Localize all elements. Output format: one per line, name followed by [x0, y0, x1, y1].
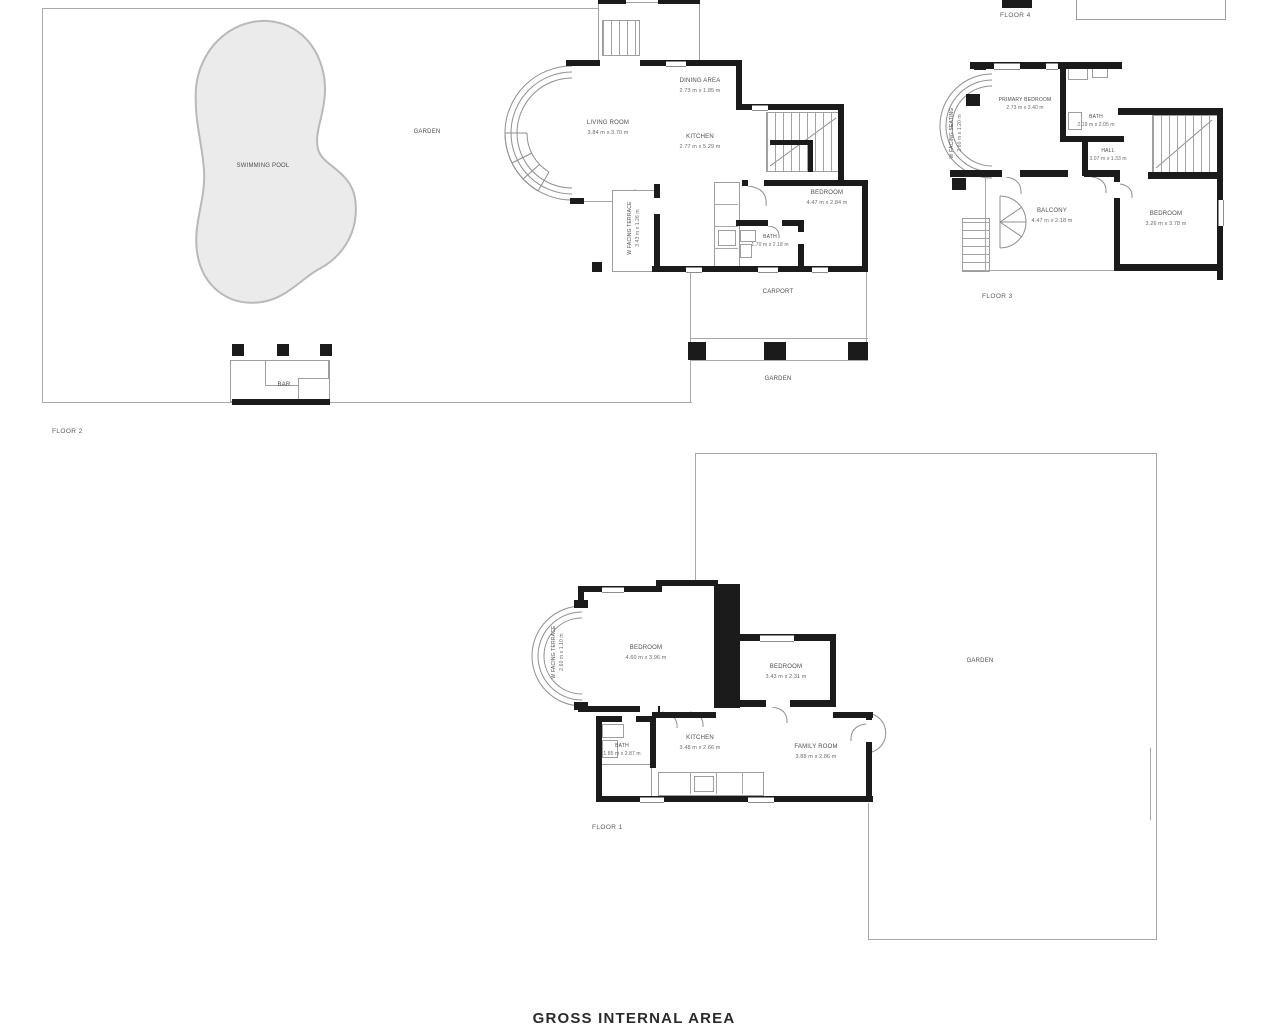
- drawing-element: [758, 267, 778, 273]
- drawing-element: [505, 66, 572, 200]
- drawing-element: [596, 716, 602, 802]
- floor3-staircase-icon: [1152, 115, 1218, 173]
- floor3-bath-fixture: [1068, 68, 1088, 80]
- garden-label: GARDEN: [414, 128, 441, 138]
- drawing-element: [527, 133, 549, 172]
- drawing-element: PRIMARY BEDROOM: [999, 97, 1052, 103]
- drawing-element: [596, 796, 873, 802]
- drawing-element: 2.60 m x 1.10 m: [558, 625, 566, 678]
- drawing-element: [952, 178, 966, 190]
- drawing-element: [966, 94, 980, 106]
- drawing-element: [1000, 196, 1026, 248]
- drawing-element: [1114, 182, 1120, 198]
- drawing-element: [598, 0, 626, 4]
- drawing-element: [798, 232, 804, 244]
- floor4-title: FLOOR 4: [1000, 12, 1031, 19]
- drawing-element: [772, 707, 787, 723]
- drawing-element: [656, 580, 662, 592]
- drawing-element: 3.07 m x 1.33 m: [1089, 155, 1126, 163]
- drawing-element: [748, 797, 774, 803]
- room-label-bath2: BATH1.70 m x 2.18 m: [751, 233, 788, 249]
- drawing-element: [1114, 264, 1223, 271]
- floor1-stairwell: [600, 764, 652, 798]
- drawing-element: 1.85 m x 2.87 m: [603, 750, 640, 758]
- room-label-bath1: BATH1.85 m x 2.87 m: [603, 742, 640, 758]
- floor-plan-sheet: SWIMMING POOL GARDEN BAR CARPORT GARDEN …: [0, 0, 1280, 1024]
- drawing-element: BATH: [1089, 114, 1103, 120]
- drawing-element: [694, 776, 714, 792]
- drawing-element: [666, 61, 686, 67]
- drawing-element: [656, 580, 718, 586]
- floor3-title: FLOOR 3: [982, 293, 1013, 300]
- drawing-element: [985, 270, 1115, 271]
- drawing-element: [1148, 172, 1223, 179]
- room-label-hall: HALL3.07 m x 1.33 m: [1089, 147, 1126, 163]
- drawing-element: [752, 105, 768, 111]
- drawing-element: [742, 772, 743, 794]
- drawing-element: FLOOR 2: [52, 428, 83, 435]
- drawing-element: [658, 0, 700, 4]
- drawing-element: [851, 724, 866, 741]
- floor2-entry-stairs-icon: [602, 20, 640, 56]
- drawing-element: [652, 712, 716, 718]
- drawing-element: [42, 402, 692, 403]
- drawing-element: BATH: [763, 234, 777, 240]
- drawing-element: [748, 186, 766, 206]
- drawing-element: [1150, 748, 1151, 820]
- drawing-element: [650, 716, 656, 768]
- drawing-element: [578, 586, 584, 608]
- drawing-element: [1066, 136, 1124, 142]
- drawing-element: [695, 453, 696, 583]
- room-label-bedroom2f: BEDROOM4.47 m x 2.84 m: [807, 189, 848, 207]
- drawing-element: SWIMMING POOL: [237, 163, 290, 169]
- floor1-title: FLOOR 1: [592, 824, 623, 831]
- drawing-element: [1082, 140, 1088, 176]
- drawing-element: 4.47 m x 2.84 m: [807, 198, 848, 207]
- drawing-element: [862, 180, 868, 272]
- drawing-element: 3.84 m x 3.70 m: [587, 128, 629, 137]
- bar-label: BAR: [278, 381, 291, 391]
- drawing-element: LIVING ROOM: [587, 120, 629, 126]
- drawing-element: FAMILY ROOM: [794, 744, 837, 750]
- drawing-element: [690, 360, 868, 361]
- room-label-bedroom3f: BEDROOM3.26 m x 3.78 m: [1146, 210, 1187, 228]
- room-label-kitchen2: KITCHEN2.77 m x 5.29 m: [680, 133, 721, 151]
- carport-post: [764, 342, 786, 360]
- room-label-seating3: W FACING SEATING2.60 m x 1.20 m: [948, 108, 964, 159]
- drawing-element: [736, 60, 742, 110]
- carport-post: [688, 342, 706, 360]
- drawing-element: FLOOR 1: [592, 824, 623, 831]
- drawing-element: [517, 78, 572, 188]
- drawing-element: [714, 226, 738, 227]
- swimming-pool-label: SWIMMING POOL: [237, 162, 290, 172]
- drawing-element: [812, 267, 828, 273]
- drawing-element: 3.43 m x 2.31 m: [766, 672, 807, 681]
- drawing-element: BALCONY: [1037, 208, 1067, 214]
- drawing-element: W FACING SEATING: [949, 108, 955, 159]
- drawing-element: [985, 177, 986, 271]
- drawing-element: [1120, 184, 1132, 198]
- room-label-terrace1: W FACING TERRACE2.60 m x 1.10 m: [550, 625, 566, 678]
- room-label-dining: DINING AREA2.73 m x 1.85 m: [680, 77, 721, 95]
- drawing-element: [866, 720, 872, 742]
- drawing-element: [768, 220, 782, 226]
- room-label-primary: PRIMARY BEDROOM2.73 m x 3.40 m: [999, 96, 1052, 112]
- drawing-element: [538, 172, 549, 191]
- drawing-element: 3.43 m x 1.26 m: [634, 201, 642, 254]
- drawing-element: [600, 60, 640, 66]
- drawing-element: [690, 272, 691, 402]
- drawing-element: [830, 634, 836, 707]
- drawing-element: [512, 153, 532, 163]
- drawing-element: W FACING TERRACE: [627, 201, 633, 254]
- drawing-element: [622, 716, 636, 722]
- drawing-element: [690, 338, 868, 339]
- drawing-element: [592, 262, 602, 272]
- room-label-living: LIVING ROOM3.84 m x 3.70 m: [587, 119, 629, 137]
- carport-label: CARPORT: [763, 288, 794, 298]
- drawing-element: BEDROOM: [770, 664, 802, 670]
- floor1-chimney-block: [714, 584, 740, 708]
- drawing-element: 4.47 m x 2.18 m: [1032, 216, 1073, 225]
- pergola-post: [277, 344, 289, 356]
- drawing-element: [1156, 453, 1157, 940]
- drawing-element: [1000, 222, 1022, 237]
- drawing-element: GROSS INTERNAL AREA: [533, 1010, 736, 1027]
- floor2-bath-fixture: [740, 244, 752, 258]
- floor1-bath-fixture: [602, 724, 624, 738]
- drawing-element: KITCHEN: [686, 134, 714, 140]
- floor4-terrace-outline: [1076, 0, 1226, 20]
- floor2-bay-window-icon: [505, 66, 572, 200]
- drawing-element: [42, 8, 598, 9]
- drawing-element: 2.73 m x 3.40 m: [999, 104, 1052, 112]
- floor3-spiral-stair-icon: [1000, 196, 1026, 248]
- drawing-element: 3.48 m x 2.66 m: [680, 743, 721, 752]
- drawing-element: 4.60 m x 3.96 m: [626, 653, 667, 662]
- drawing-element: [714, 204, 738, 205]
- room-label-bedroom1a: BEDROOM4.60 m x 3.96 m: [626, 644, 667, 662]
- drawing-element: [602, 587, 624, 593]
- drawing-element: [1046, 63, 1058, 70]
- drawing-element: [686, 267, 702, 273]
- drawing-element: [770, 140, 812, 145]
- drawing-element: [232, 399, 330, 405]
- drawing-element: 3.26 m x 3.78 m: [1146, 219, 1187, 228]
- drawing-element: [695, 453, 1157, 454]
- pergola-post: [232, 344, 244, 356]
- drawing-element: [1002, 170, 1020, 177]
- drawing-element: [1000, 207, 1022, 222]
- drawing-element: [566, 60, 590, 66]
- drawing-element: GARDEN: [765, 376, 792, 382]
- drawing-element: BEDROOM: [811, 190, 843, 196]
- drawing-element: [994, 63, 1020, 70]
- drawing-element: [716, 772, 717, 794]
- drawing-element: [523, 164, 540, 179]
- drawing-element: [584, 201, 612, 202]
- drawing-element: [1118, 108, 1223, 115]
- drawing-element: [1092, 177, 1106, 193]
- drawing-element: BAR: [278, 382, 291, 388]
- drawing-element: [570, 198, 584, 204]
- drawing-element: 1.70 m x 2.18 m: [751, 241, 788, 249]
- drawing-element: [760, 635, 794, 642]
- plan-drawing-overlay: [0, 0, 1280, 1024]
- drawing-element: FLOOR 3: [982, 293, 1013, 300]
- room-label-kitchen1: KITCHEN3.48 m x 2.66 m: [680, 734, 721, 752]
- drawing-element: [654, 198, 660, 214]
- garden1-label: GARDEN: [967, 657, 994, 667]
- room-label-terrace2: W FACING TERRACE3.43 m x 1.26 m: [626, 201, 642, 254]
- drawing-element: [1002, 0, 1032, 8]
- drawing-element: [838, 104, 844, 186]
- drawing-element: [766, 700, 790, 707]
- drawing-element: BEDROOM: [1150, 211, 1182, 217]
- drawing-element: 2.19 m x 2.05 m: [1077, 121, 1114, 129]
- drawing-element: [1218, 200, 1224, 226]
- drawing-element: [1217, 108, 1223, 280]
- drawing-element: DINING AREA: [680, 78, 721, 84]
- floor3-bath-fixture: [1092, 68, 1108, 78]
- drawing-element: 2.73 m x 1.85 m: [680, 86, 721, 95]
- gross-internal-area-caption: GROSS INTERNAL AREA: [533, 1010, 736, 1027]
- drawing-element: [640, 797, 664, 803]
- garden-lower-label: GARDEN: [765, 375, 792, 385]
- drawing-element: [808, 140, 813, 172]
- drawing-element: BATH: [615, 743, 629, 749]
- pergola-post: [320, 344, 332, 356]
- room-label-bath3: BATH2.19 m x 2.05 m: [1077, 113, 1114, 129]
- drawing-element: GARDEN: [414, 129, 441, 135]
- drawing-element: 2.60 m x 1.20 m: [956, 108, 964, 159]
- carport-post: [848, 342, 868, 360]
- room-label-family: FAMILY ROOM3.88 m x 2.86 m: [794, 743, 837, 761]
- drawing-element: [690, 772, 691, 794]
- drawing-element: 3.88 m x 2.86 m: [794, 752, 837, 761]
- floor2-curved-steps-icon: [505, 133, 549, 191]
- drawing-element: HALL: [1101, 148, 1114, 154]
- drawing-element: FLOOR 4: [1000, 12, 1031, 19]
- drawing-element: [42, 8, 43, 403]
- drawing-element: [505, 133, 538, 191]
- floor2-title: FLOOR 2: [52, 428, 83, 435]
- drawing-element: [511, 72, 572, 194]
- drawing-element: BEDROOM: [630, 645, 662, 651]
- drawing-element: KITCHEN: [686, 735, 714, 741]
- drawing-element: [748, 180, 764, 186]
- drawing-element: W FACING TERRACE: [551, 625, 557, 678]
- drawing-element: [718, 230, 736, 246]
- drawing-element: [1006, 177, 1021, 194]
- drawing-element: [640, 706, 658, 712]
- room-label-bedroom1b: BEDROOM3.43 m x 2.31 m: [766, 663, 807, 681]
- drawing-element: [1060, 62, 1066, 142]
- drawing-element: [868, 939, 1157, 940]
- room-label-balcony: BALCONY4.47 m x 2.18 m: [1032, 207, 1073, 225]
- drawing-element: CARPORT: [763, 289, 794, 295]
- drawing-element: GARDEN: [967, 658, 994, 664]
- drawing-element: 2.77 m x 5.29 m: [680, 142, 721, 151]
- drawing-element: [714, 248, 738, 249]
- floor1-porch-arc: [872, 714, 886, 752]
- drawing-element: [868, 803, 869, 940]
